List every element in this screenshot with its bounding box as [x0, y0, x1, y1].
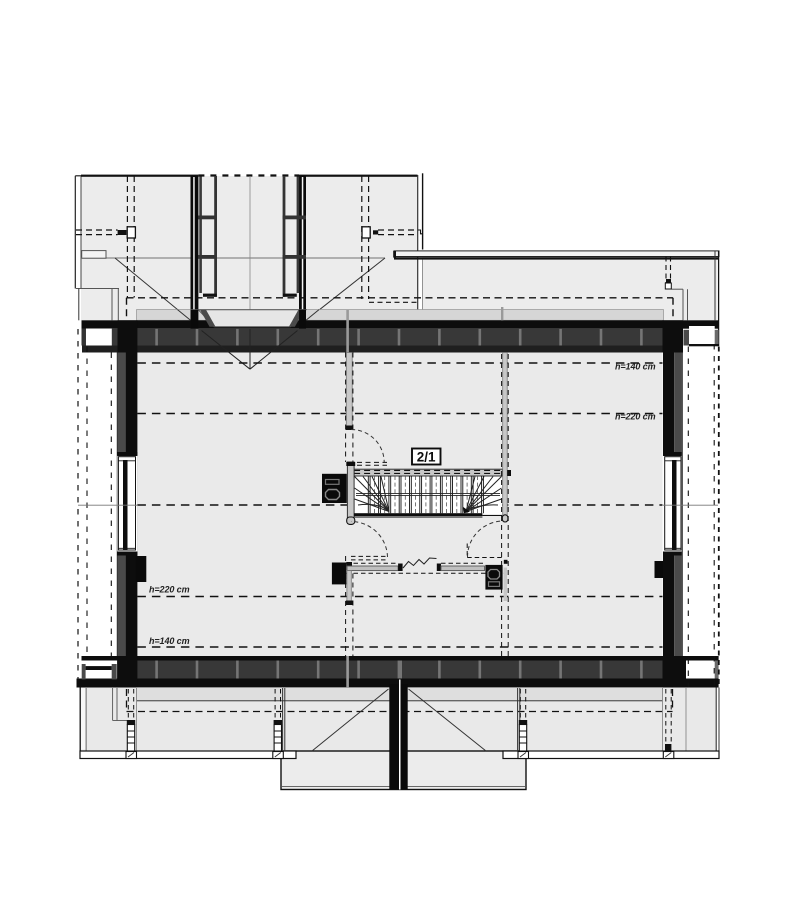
svg-text:h=220 cm: h=220 cm [615, 412, 656, 422]
svg-text:h=220 cm: h=220 cm [149, 585, 190, 595]
svg-text:h=140 cm: h=140 cm [149, 636, 190, 646]
svg-text:2/1: 2/1 [417, 450, 436, 465]
svg-text:h=140 cm: h=140 cm [615, 362, 656, 372]
